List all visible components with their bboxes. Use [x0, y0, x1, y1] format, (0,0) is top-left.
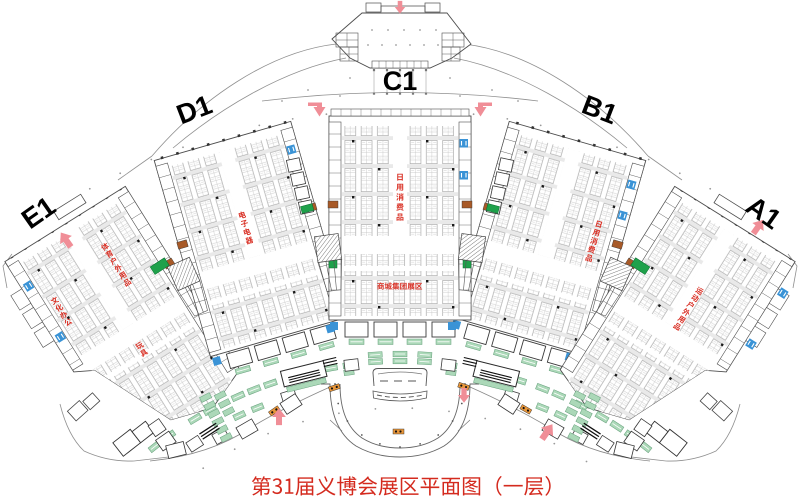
svg-text:C1: C1 — [383, 66, 418, 96]
